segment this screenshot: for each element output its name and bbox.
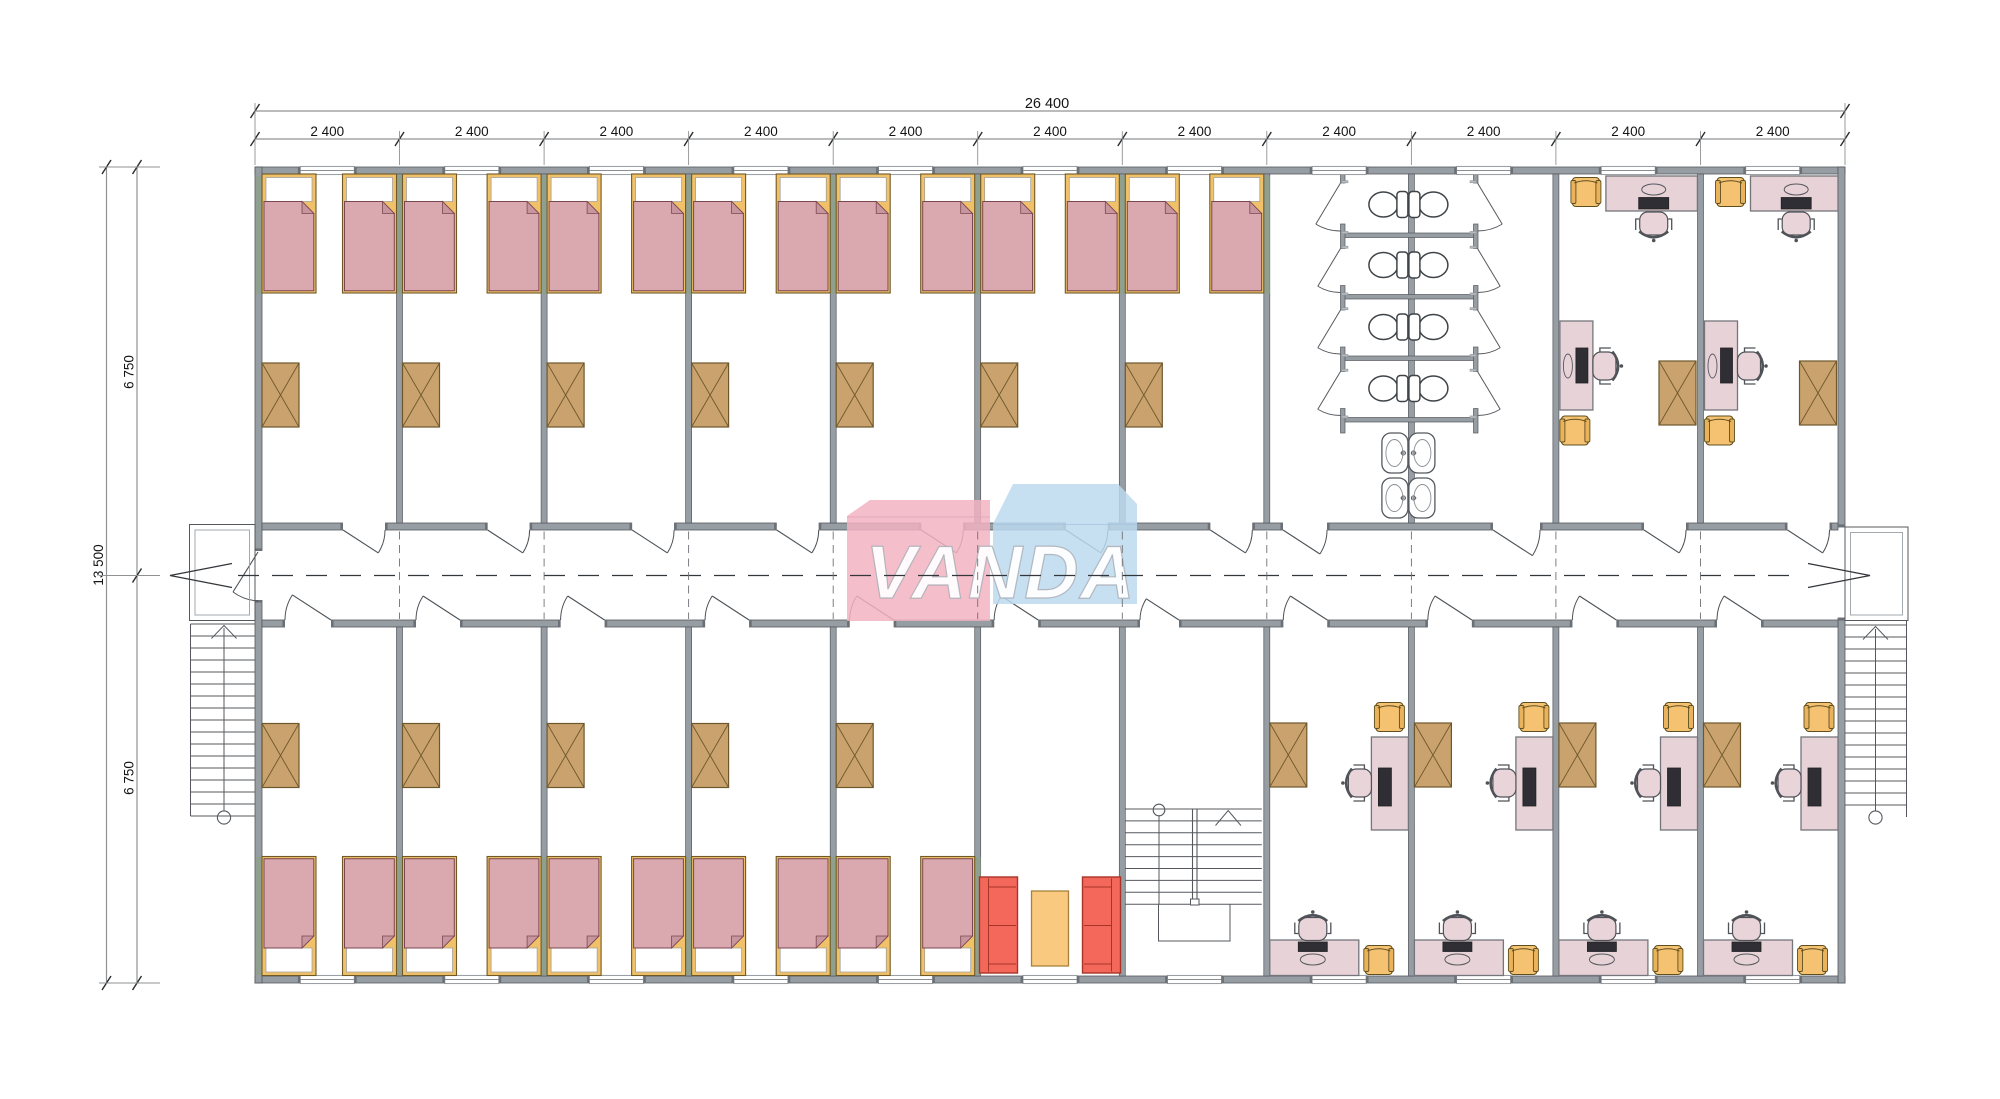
svg-text:13 500: 13 500 [91, 544, 106, 585]
svg-text:6 750: 6 750 [122, 761, 137, 795]
svg-text:2 400: 2 400 [889, 124, 923, 139]
svg-text:26 400: 26 400 [1025, 96, 1069, 112]
svg-text:2 400: 2 400 [600, 124, 634, 139]
svg-text:2 400: 2 400 [744, 124, 778, 139]
svg-text:2 400: 2 400 [310, 124, 344, 139]
svg-text:2 400: 2 400 [1611, 124, 1645, 139]
svg-text:2 400: 2 400 [455, 124, 489, 139]
svg-text:2 400: 2 400 [1467, 124, 1501, 139]
svg-text:2 400: 2 400 [1322, 124, 1356, 139]
svg-text:2 400: 2 400 [1756, 124, 1790, 139]
svg-text:6 750: 6 750 [122, 355, 137, 389]
svg-text:2 400: 2 400 [1178, 124, 1212, 139]
svg-text:VANDA: VANDA [865, 530, 1136, 614]
svg-text:2 400: 2 400 [1033, 124, 1067, 139]
